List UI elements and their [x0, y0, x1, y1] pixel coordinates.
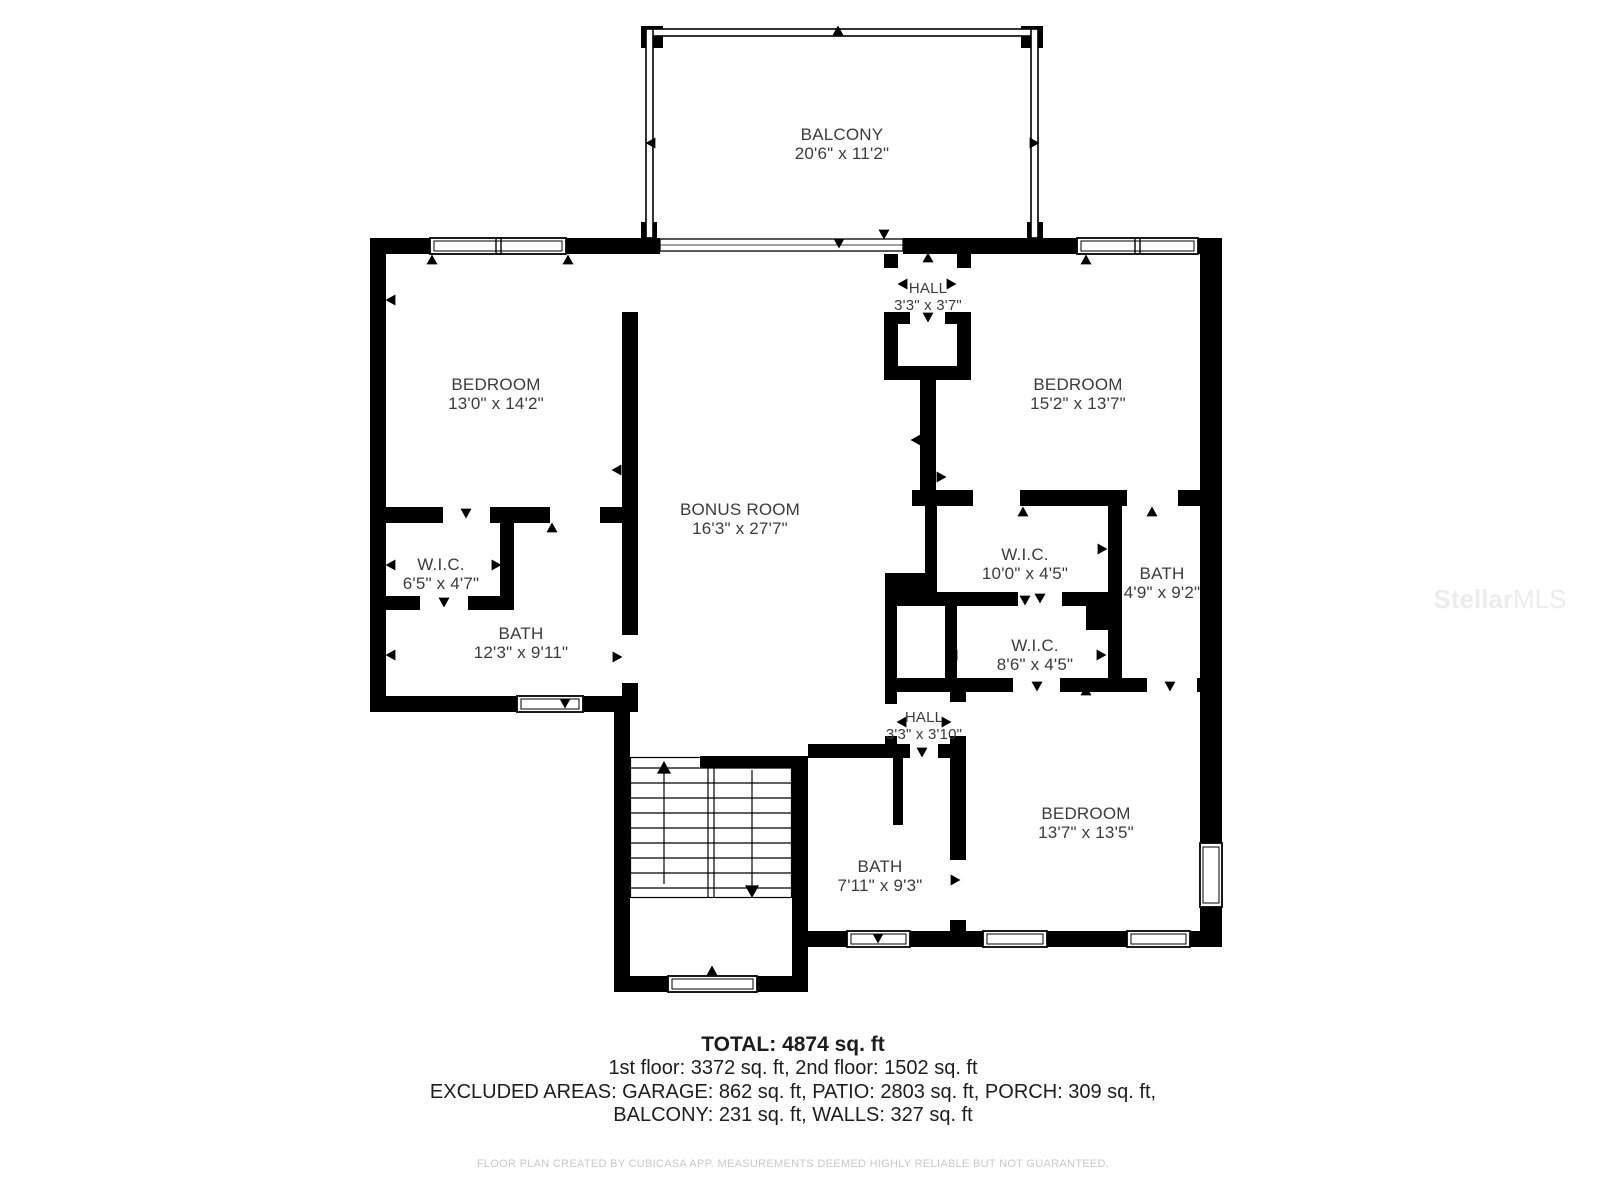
room-label-bedroom-bottom: BEDROOM13'7" x 13'5" [1038, 804, 1134, 842]
measure-arrow [386, 295, 396, 306]
measure-arrow [613, 652, 623, 663]
measure-arrow [563, 255, 574, 265]
window-bedroom-bottom-2 [1127, 931, 1190, 947]
floor-plan-page: BALCONY20'6" x 11'2" BEDROOM13'0" x 14'2… [0, 0, 1600, 1200]
balcony-door-opening [660, 239, 903, 251]
floor-areas: 1st floor: 3372 sq. ft, 2nd floor: 1502 … [0, 1057, 1586, 1081]
window-bedroom-bottom-1 [983, 931, 1047, 947]
measure-arrow [1097, 650, 1107, 661]
measure-arrow [707, 966, 718, 976]
room-label-wic-lower: W.I.C.8'6" x 4'5" [997, 636, 1074, 674]
room-label-bedroom-right: BEDROOM15'2" x 13'7" [1030, 375, 1126, 413]
measure-arrow [1098, 544, 1108, 555]
window-bath-left [517, 696, 583, 712]
watermark-stellar-mls: StellarMLS [1434, 584, 1567, 615]
room-label-wic-middle: W.I.C.10'0" x 4'5" [982, 545, 1068, 583]
room-label-bath-left: BATH12'3" x 9'11" [474, 624, 569, 662]
measure-arrow [439, 598, 450, 608]
measure-arrow [917, 748, 928, 758]
measure-arrow [1018, 507, 1029, 517]
total-area: TOTAL: 4874 sq. ft [0, 1032, 1586, 1057]
measure-arrow [879, 230, 890, 240]
room-label-balcony: BALCONY20'6" x 11'2" [795, 125, 890, 163]
room-label-wic-left: W.I.C.6'5" x 4'7" [403, 555, 480, 593]
measure-arrow [386, 650, 396, 661]
measure-arrow [911, 435, 921, 446]
window-top-left [430, 238, 566, 254]
measure-arrow [386, 560, 396, 571]
excluded-areas: EXCLUDED AREAS: GARAGE: 862 sq. ft, PATI… [0, 1081, 1586, 1105]
measure-arrow [612, 465, 622, 476]
room-label-bath-bottom: BATH7'11" x 9'3" [838, 857, 923, 895]
measure-arrow [1035, 594, 1046, 604]
measure-arrow [923, 313, 934, 323]
measure-arrow [951, 875, 961, 886]
window-top-right [1077, 238, 1198, 254]
disclaimer: FLOOR PLAN CREATED BY CUBICASA APP. MEAS… [0, 1158, 1586, 1170]
measure-arrow [1165, 682, 1176, 692]
measure-arrow [547, 523, 558, 533]
floor-plan-drawing [0, 0, 1600, 1200]
measure-arrow [461, 509, 472, 519]
measure-arrow [427, 255, 438, 265]
measure-arrow [1081, 255, 1092, 265]
measure-arrow [1147, 507, 1158, 517]
measure-arrow [657, 761, 671, 774]
measure-arrow [937, 472, 947, 483]
room-label-bonus-room: BONUS ROOM16'3" x 27'7" [680, 500, 800, 538]
measure-arrow [1032, 682, 1043, 692]
room-label-hall-lower: HALL3'3" x 3'10" [886, 709, 962, 743]
measure-arrow [1020, 596, 1031, 606]
room-label-hall-upper: HALL3'3" x 3'7" [894, 280, 962, 314]
window-bottom-left [668, 976, 757, 992]
measure-arrow [745, 885, 759, 898]
staircase [631, 757, 792, 898]
window-bedroom-right-side [1200, 843, 1222, 907]
area-summary: TOTAL: 4874 sq. ft 1st floor: 3372 sq. f… [0, 1032, 1586, 1128]
excluded-areas-2: BALCONY: 231 sq. ft, WALLS: 327 sq. ft [0, 1104, 1586, 1128]
room-label-bedroom-left: BEDROOM13'0" x 14'2" [448, 375, 544, 413]
room-label-bath-right: BATH4'9" x 9'2" [1124, 564, 1201, 602]
